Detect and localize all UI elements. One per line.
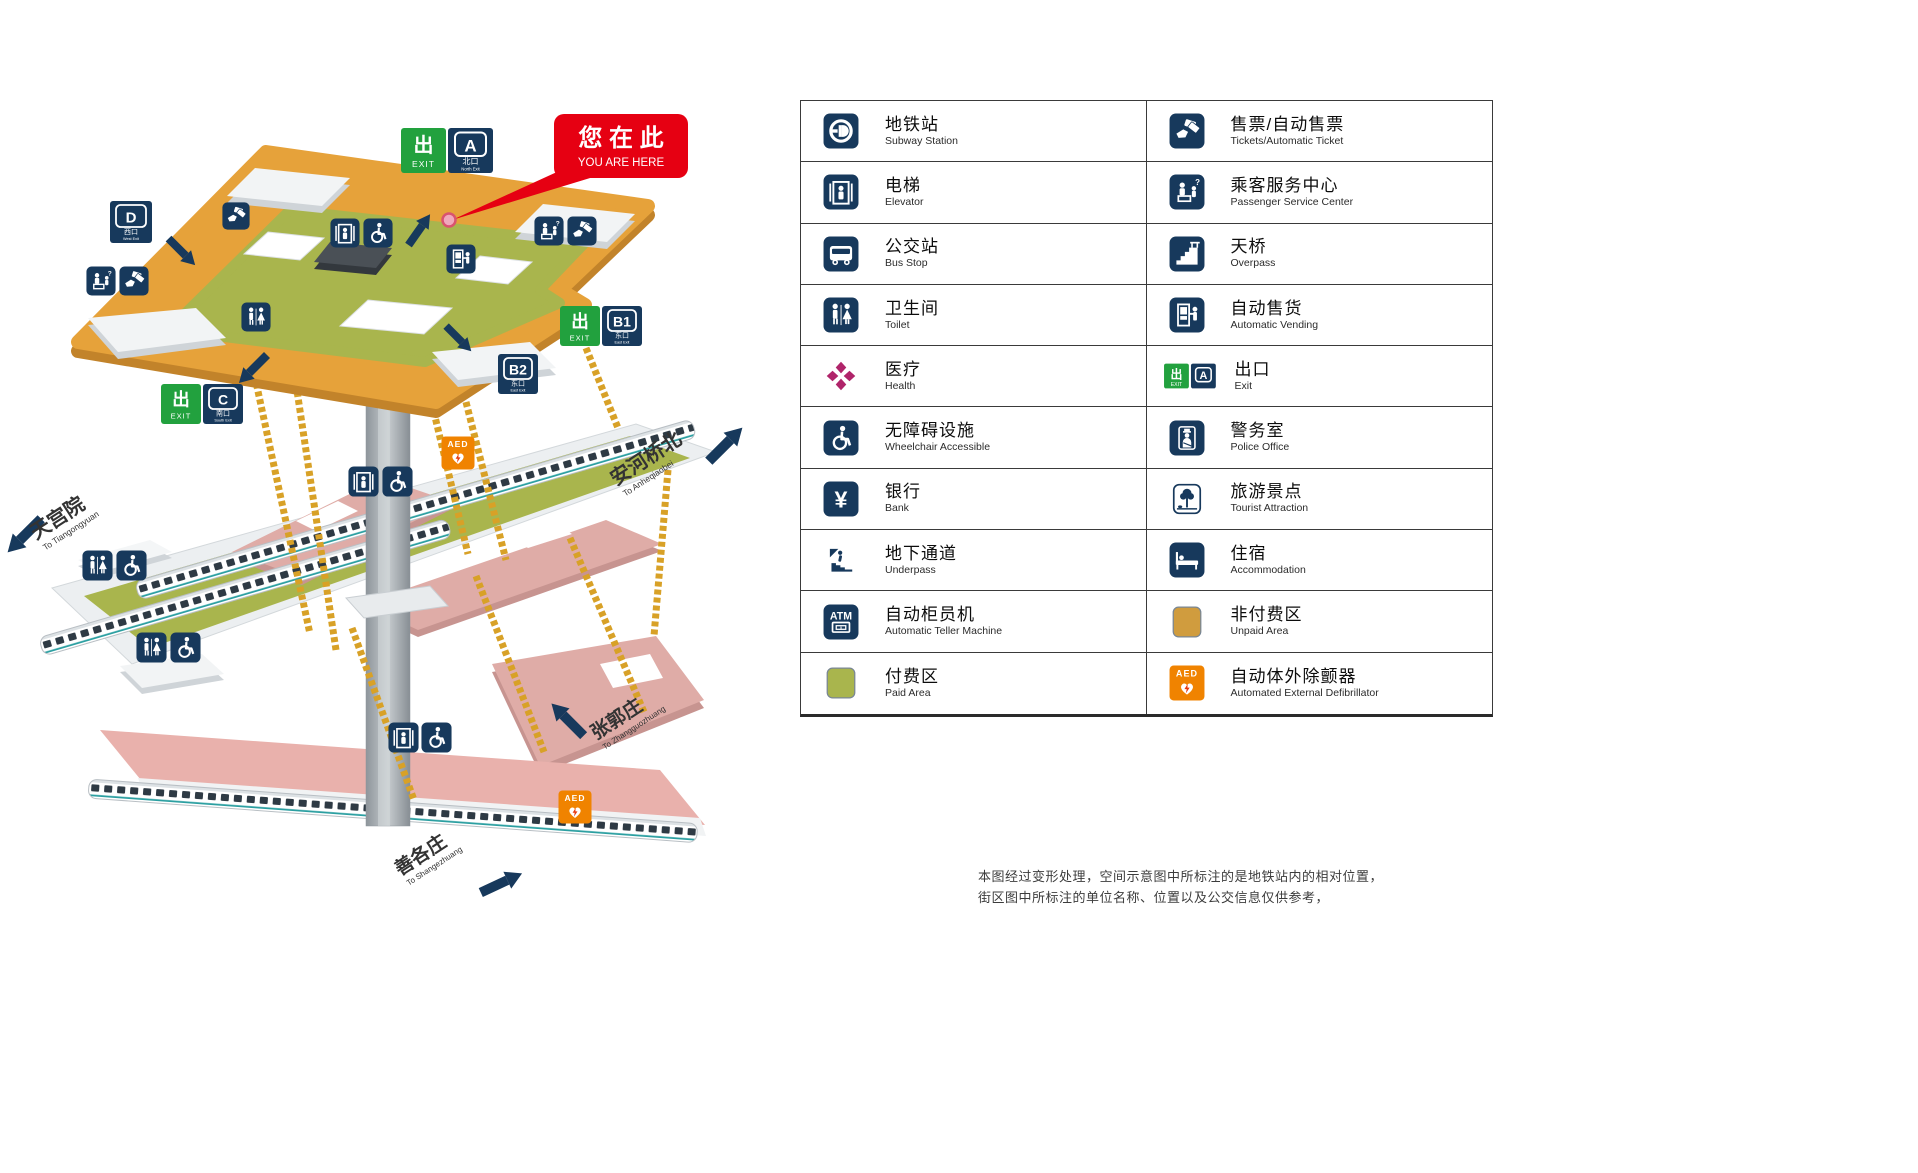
aed-icon <box>442 437 475 470</box>
legend-item-wheelchair-accessible: 无障碍设施 Wheelchair Accessible <box>801 407 1147 468</box>
legend-zh: 自动柜员机 <box>885 605 1002 625</box>
legend-en: Bank <box>885 502 921 515</box>
legend-en: Bus Stop <box>885 257 939 270</box>
legend-en: Automatic Teller Machine <box>885 625 1002 638</box>
toilet-icon <box>82 550 112 580</box>
legend-en: Subway Station <box>885 135 958 148</box>
legend-item-bank: 银行 Bank <box>801 469 1147 530</box>
legend-zh: 卫生间 <box>885 299 939 319</box>
svg-text:D: D <box>126 210 137 227</box>
svg-text:South Exit: South Exit <box>214 419 232 423</box>
legend-item-tickets: 售票/自动售票 Tickets/Automatic Ticket <box>1147 101 1493 162</box>
legend-en: Tickets/Automatic Ticket <box>1231 135 1345 148</box>
legend-zh: 售票/自动售票 <box>1231 115 1345 135</box>
legend-zh: 自动体外除颤器 <box>1231 667 1379 687</box>
legend-item-police-office: 警务室 Police Office <box>1147 407 1493 468</box>
svg-text:东口: 东口 <box>511 379 525 388</box>
legend-item-accommodation: 住宿 Accommodation <box>1147 530 1493 591</box>
legend-item-tourist-attraction: 旅游景点 Tourist Attraction <box>1147 469 1493 530</box>
svg-text:A: A <box>464 137 476 156</box>
svg-text:East Exit: East Exit <box>615 341 631 345</box>
svg-text:EXIT: EXIT <box>412 159 435 169</box>
footnote-line1: 本图经过变形处理，空间示意图中所标注的是地铁站内的相对位置， <box>978 866 1383 887</box>
exit-icon <box>1163 358 1221 394</box>
atm-icon <box>823 604 859 640</box>
wheelchair-icon <box>421 722 451 752</box>
legend-en: Wheelchair Accessible <box>885 441 990 454</box>
vending-icon <box>446 244 475 273</box>
tickets-icon <box>1169 113 1205 149</box>
footnote-line2: 街区图中所标注的单位名称、位置以及公交信息仅供参考， <box>978 887 1383 908</box>
legend-zh: 非付费区 <box>1231 605 1303 625</box>
tourist-attraction-icon <box>1169 481 1205 517</box>
arrow-shangezhuang <box>481 862 522 903</box>
legend-item-paid-area: 付费区 Paid Area <box>801 653 1147 714</box>
passenger-service-icon <box>86 266 115 295</box>
legend-zh: 电梯 <box>885 176 924 196</box>
legend-item-automatic-vending: 自动售货 Automatic Vending <box>1147 285 1493 346</box>
passenger-service-icon <box>534 216 563 245</box>
legend-zh: 公交站 <box>885 237 939 257</box>
svg-text:B1: B1 <box>613 314 631 330</box>
wheelchair-icon <box>116 550 146 580</box>
legend-item-subway-station: 地铁站 Subway Station <box>801 101 1147 162</box>
toilet-icon <box>823 297 859 333</box>
passenger-service-icon <box>1169 174 1205 210</box>
direction-tiangongyuan: 天宫院 To Tiangongyuan <box>8 488 101 554</box>
wheelchair-icon <box>823 420 859 456</box>
svg-text:EXIT: EXIT <box>570 334 591 343</box>
overpass-icon <box>1169 236 1205 272</box>
legend-item-atm: 自动柜员机 Automatic Teller Machine <box>801 591 1147 652</box>
legend-en: Automatic Vending <box>1231 319 1319 332</box>
legend-zh: 地铁站 <box>885 115 958 135</box>
legend-item-unpaid-area: 非付费区 Unpaid Area <box>1147 591 1493 652</box>
svg-text:出: 出 <box>172 390 190 410</box>
svg-text:北口: 北口 <box>463 157 479 166</box>
station-3d-map: ¥ ATM ¥ <box>0 0 790 960</box>
legend-en: Health <box>885 380 921 393</box>
exit-sign-d: D 西口 West Exit <box>110 201 152 243</box>
tickets-icon <box>222 202 249 229</box>
svg-text:东口: 东口 <box>615 331 629 340</box>
aed-icon <box>559 791 592 824</box>
elevator-icon <box>330 218 359 247</box>
bus-stop-icon <box>823 236 859 272</box>
legend-zh: 医疗 <box>885 360 921 380</box>
svg-text:出: 出 <box>571 312 589 332</box>
svg-text:B2: B2 <box>509 362 527 378</box>
legend-en: Underpass <box>885 564 957 577</box>
subway-station-icon <box>823 113 859 149</box>
arrow-anheqiaobei <box>709 428 743 462</box>
legend-item-toilet: 卫生间 Toilet <box>801 285 1147 346</box>
exit-sign-b2: B2 东口 East Exit <box>498 354 538 394</box>
wheelchair-icon <box>170 632 200 662</box>
legend-item-health: 医疗 Health <box>801 346 1147 407</box>
legend-zh: 银行 <box>885 482 921 502</box>
legend-item-exit: 出口 Exit <box>1147 346 1493 407</box>
legend-zh: 无障碍设施 <box>885 421 990 441</box>
exit-sign-a: 出 EXIT A 北口 North Exit <box>401 128 493 173</box>
health-icon <box>823 358 859 394</box>
legend-zh: 付费区 <box>885 667 939 687</box>
svg-text:南口: 南口 <box>216 409 230 418</box>
legend-zh: 乘客服务中心 <box>1231 176 1354 196</box>
legend-en: Accommodation <box>1231 564 1306 577</box>
svg-text:YOU ARE HERE: YOU ARE HERE <box>578 157 665 169</box>
underpass-icon <box>823 542 859 578</box>
svg-text:出: 出 <box>414 134 434 157</box>
vending-icon <box>1169 297 1205 333</box>
bank-icon <box>823 481 859 517</box>
svg-text:North Exit: North Exit <box>461 167 480 172</box>
legend-zh: 自动售货 <box>1231 299 1319 319</box>
svg-text:West Exit: West Exit <box>123 237 140 241</box>
legend-item-bus-stop: 公交站 Bus Stop <box>801 224 1147 285</box>
legend-en: Passenger Service Center <box>1231 196 1354 209</box>
legend-en: Overpass <box>1231 257 1276 270</box>
elevator-icon <box>348 466 378 496</box>
wheelchair-icon <box>382 466 412 496</box>
legend-table: 地铁站 Subway Station 售票/自动售票 Tickets/Autom… <box>800 100 1493 717</box>
station-map-page: ¥ ATM ¥ <box>0 0 1918 1173</box>
legend-zh: 旅游景点 <box>1231 482 1309 502</box>
accommodation-icon <box>1169 542 1205 578</box>
legend-zh: 出口 <box>1235 360 1271 380</box>
legend-item-elevator: 电梯 Elevator <box>801 162 1147 223</box>
legend-zh: 地下通道 <box>885 544 957 564</box>
legend-item-aed: 自动体外除颤器 Automated External Defibrillator <box>1147 653 1493 714</box>
footnote: 本图经过变形处理，空间示意图中所标注的是地铁站内的相对位置， 街区图中所标注的单… <box>978 866 1383 908</box>
toilet-icon <box>241 302 270 331</box>
paid-area-swatch <box>823 665 859 701</box>
tickets-icon <box>567 216 596 245</box>
train-middle-back <box>135 419 697 600</box>
exit-sign-c: 出 EXIT C 南口 South Exit <box>161 384 243 424</box>
toilet-icon <box>136 632 166 662</box>
legend-zh: 住宿 <box>1231 544 1306 564</box>
wheelchair-icon <box>363 218 392 247</box>
legend-en: Elevator <box>885 196 924 209</box>
legend-en: Police Office <box>1231 441 1290 454</box>
elevator-icon <box>388 722 418 752</box>
legend-en: Toilet <box>885 319 939 332</box>
legend-en: Automated External Defibrillator <box>1231 687 1379 700</box>
svg-text:C: C <box>218 392 228 408</box>
legend-zh: 天桥 <box>1231 237 1276 257</box>
svg-text:EXIT: EXIT <box>171 412 192 421</box>
direction-shangezhuang: 善各庄 To Shangezhuang <box>390 825 522 904</box>
legend-zh: 警务室 <box>1231 421 1290 441</box>
tickets-icon <box>119 266 148 295</box>
you-are-here-dot <box>443 214 456 227</box>
legend-item-underpass: 地下通道 Underpass <box>801 530 1147 591</box>
police-icon <box>1169 420 1205 456</box>
legend-en: Unpaid Area <box>1231 625 1303 638</box>
unpaid-area-swatch <box>1169 604 1205 640</box>
aed-icon <box>1169 665 1205 701</box>
svg-text:East Exit: East Exit <box>511 389 527 393</box>
svg-text:您 在 此: 您 在 此 <box>578 124 663 152</box>
street-level <box>78 152 648 411</box>
legend-en: Tourist Attraction <box>1231 502 1309 515</box>
legend-item-overpass: 天桥 Overpass <box>1147 224 1493 285</box>
exit-sign-b1: 出 EXIT B1 东口 East Exit <box>560 306 642 346</box>
legend-en: Exit <box>1235 380 1271 393</box>
legend-item-passenger-service-center: 乘客服务中心 Passenger Service Center <box>1147 162 1493 223</box>
svg-text:西口: 西口 <box>124 228 138 236</box>
legend-en: Paid Area <box>885 687 939 700</box>
elevator-icon <box>823 174 859 210</box>
